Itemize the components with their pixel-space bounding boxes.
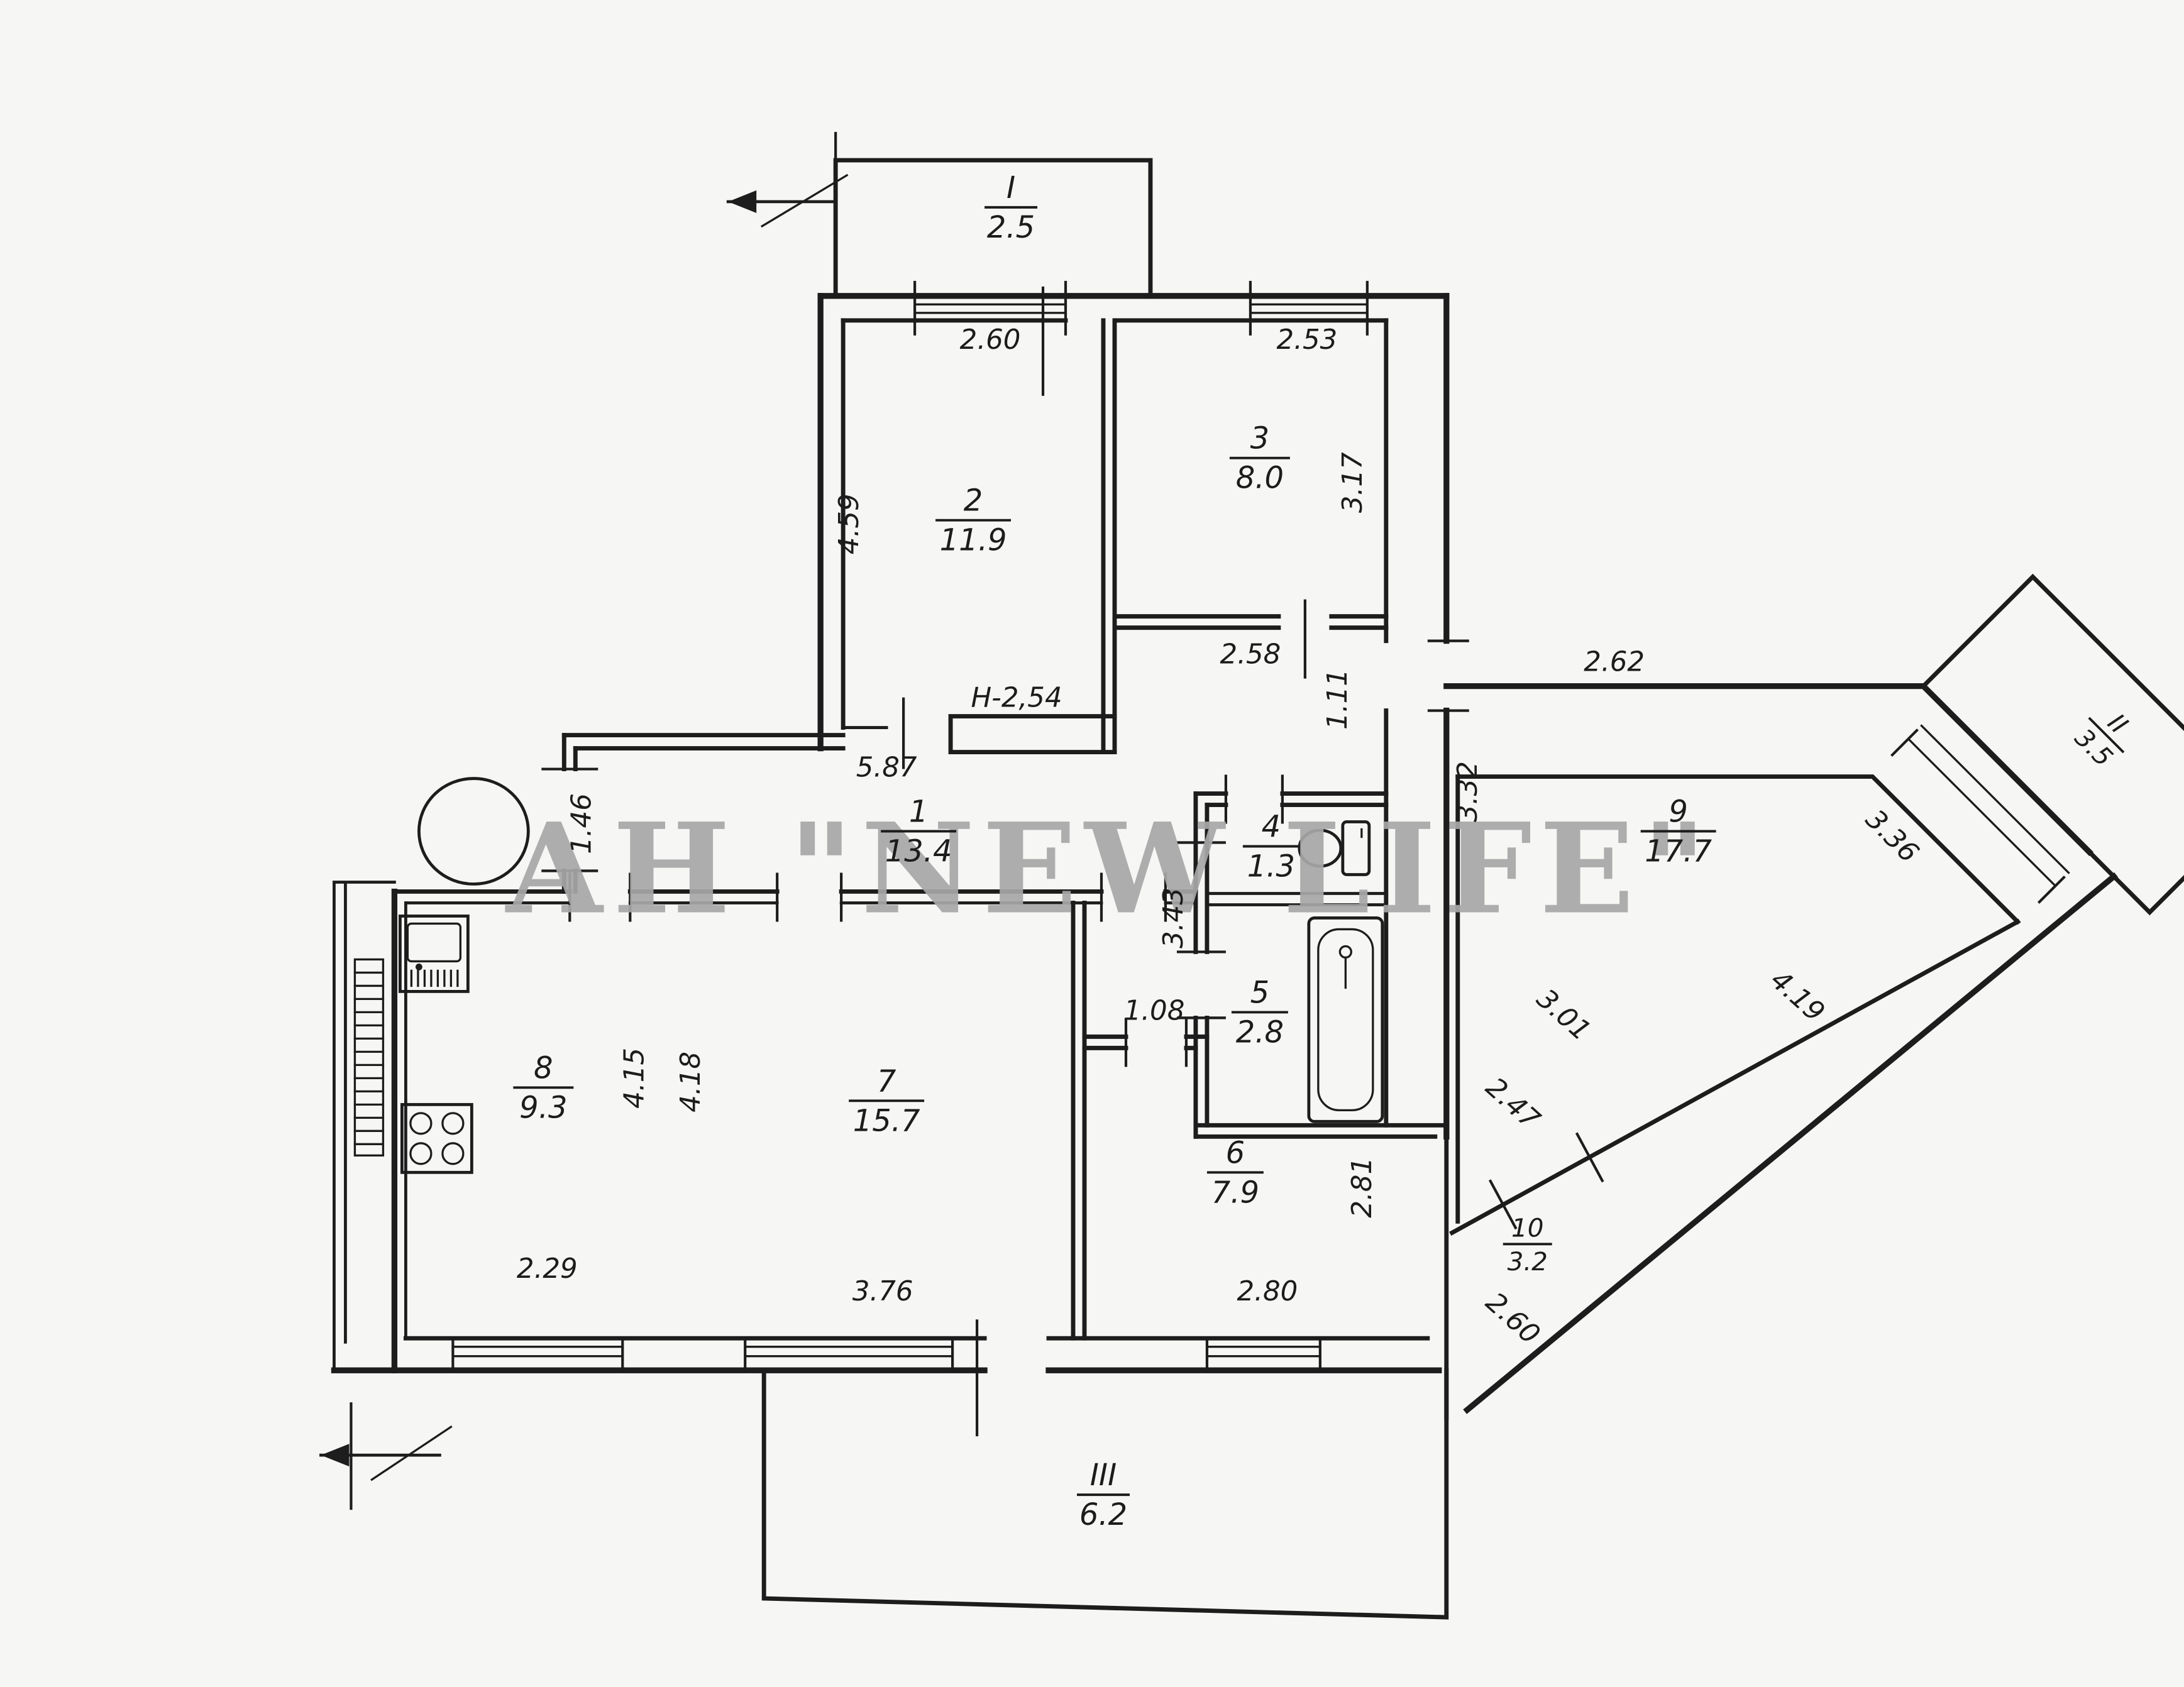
dim-room3-right: 3.17 — [1337, 452, 1369, 513]
room-4-area: 1.3 — [1247, 849, 1295, 884]
dim-kitchen-right: 4.15 — [619, 1048, 650, 1109]
scanned-floor-plan-page: АН "NEW LIFE" 1 13.4 2 11.9 3 8.0 4 1.3 … — [0, 0, 2184, 1687]
room-1-number: 1 — [909, 794, 929, 830]
room-5-number: 5 — [1250, 975, 1270, 1010]
floor-plan-drawing: АН "NEW LIFE" 1 13.4 2 11.9 3 8.0 4 1.3 … — [0, 0, 2184, 1687]
dim-room9-top: 2.62 — [1584, 647, 1645, 678]
dim-room3-top: 2.53 — [1276, 324, 1337, 356]
dim-lobby-width: 2.58 — [1220, 639, 1281, 671]
dim-room7-bottom: 3.76 — [852, 1276, 913, 1307]
balcony-I-number: I — [1007, 170, 1015, 206]
room-8-area: 9.3 — [519, 1090, 567, 1125]
room-9-number: 9 — [1668, 794, 1688, 830]
room-7-area: 15.7 — [853, 1103, 920, 1138]
room-6-area: 7.9 — [1211, 1175, 1259, 1210]
dim-room2-top: 2.60 — [960, 324, 1021, 356]
room-2-area: 11.9 — [940, 523, 1007, 558]
room-10-area: 3.2 — [1508, 1246, 1548, 1277]
balcony-III-area: 6.2 — [1079, 1497, 1127, 1532]
room-3-area: 8.0 — [1236, 461, 1284, 496]
room-4-number: 4 — [1262, 810, 1281, 845]
dim-kitchen-bottom: 2.29 — [517, 1253, 578, 1285]
balcony-I-area: 2.5 — [987, 210, 1035, 245]
agency-watermark: АН "NEW LIFE" — [504, 795, 1714, 942]
room-9-area: 17.7 — [1645, 833, 1712, 869]
dim-room2-left: 4.59 — [834, 493, 865, 554]
dim-room6-right: 2.81 — [1347, 1157, 1378, 1218]
room-10-number: 10 — [1511, 1212, 1544, 1243]
dim-wc-bath-left: 3.43 — [1158, 887, 1189, 948]
ceiling-height-note: Н-2,54 — [971, 683, 1062, 714]
dim-room6-door: 1.08 — [1124, 995, 1185, 1026]
dim-room9-left: 3.32 — [1452, 761, 1484, 822]
balcony-III-number: III — [1090, 1458, 1117, 1493]
dim-passage-height: 1.11 — [1322, 669, 1354, 730]
room-3-number: 3 — [1250, 421, 1270, 456]
room-1-area: 13.4 — [885, 833, 952, 869]
dim-hall-door: 1.46 — [566, 793, 597, 854]
dim-room7-left: 4.18 — [675, 1052, 707, 1113]
dim-room6-bottom: 2.80 — [1237, 1276, 1298, 1307]
room-2-number: 2 — [964, 483, 983, 519]
room-5-area: 2.8 — [1236, 1014, 1284, 1050]
room-6-number: 6 — [1226, 1135, 1245, 1170]
room-8-number: 8 — [534, 1050, 553, 1085]
dim-hall-length: 5.87 — [856, 752, 917, 784]
room-7-number: 7 — [877, 1063, 896, 1099]
